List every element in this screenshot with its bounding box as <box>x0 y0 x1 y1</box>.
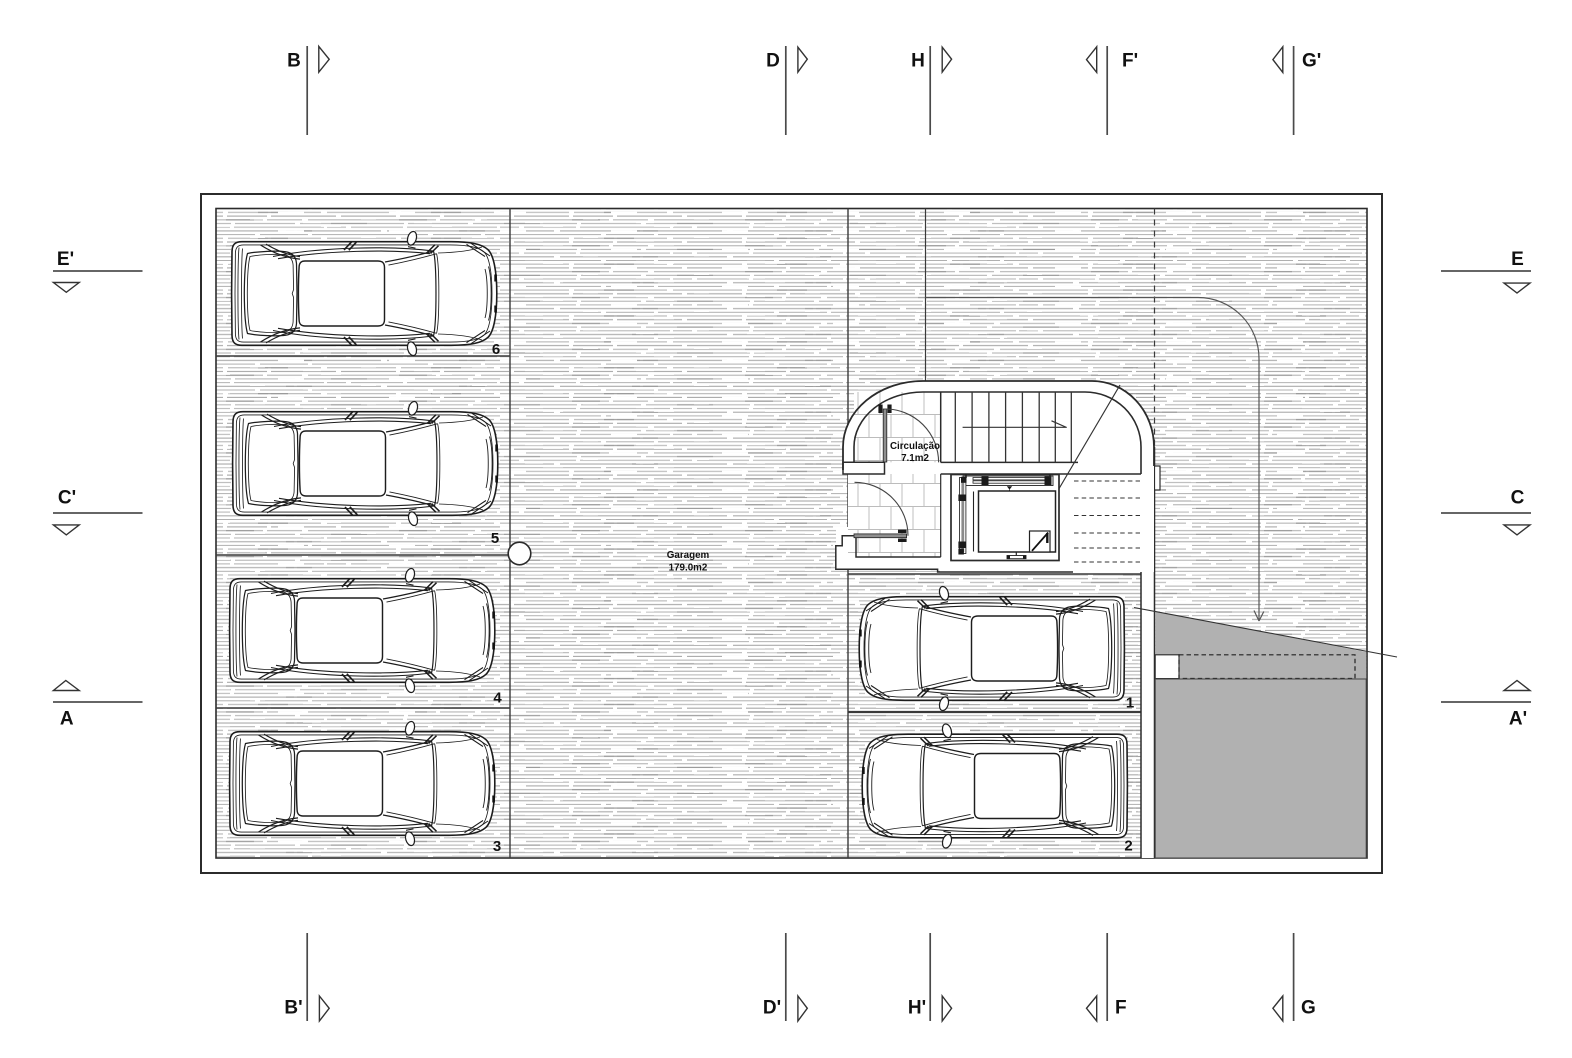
svg-text:179.0m2: 179.0m2 <box>669 563 708 574</box>
svg-text:6: 6 <box>492 341 500 358</box>
svg-text:C: C <box>1511 488 1525 509</box>
svg-text:4: 4 <box>493 690 502 707</box>
svg-text:A: A <box>60 709 74 730</box>
svg-text:B': B' <box>284 998 302 1019</box>
svg-text:D': D' <box>763 998 781 1019</box>
svg-text:A': A' <box>1509 709 1527 730</box>
svg-text:H: H <box>911 51 925 72</box>
svg-text:1: 1 <box>1126 695 1134 712</box>
svg-text:F: F <box>1115 998 1127 1019</box>
svg-text:F': F' <box>1122 51 1138 72</box>
svg-text:7.1m2: 7.1m2 <box>901 453 929 464</box>
svg-text:G': G' <box>1302 51 1321 72</box>
svg-text:B: B <box>287 51 301 72</box>
svg-text:G: G <box>1301 998 1316 1019</box>
svg-text:3: 3 <box>493 838 501 855</box>
svg-text:E': E' <box>57 249 74 270</box>
svg-text:Garagem: Garagem <box>667 550 710 561</box>
svg-text:E: E <box>1511 249 1524 270</box>
svg-text:2: 2 <box>1124 838 1132 855</box>
svg-text:5: 5 <box>491 530 499 547</box>
svg-text:D: D <box>766 51 780 72</box>
svg-text:H': H' <box>908 998 926 1019</box>
svg-text:Circulação: Circulação <box>890 441 940 452</box>
svg-text:C': C' <box>58 488 76 509</box>
